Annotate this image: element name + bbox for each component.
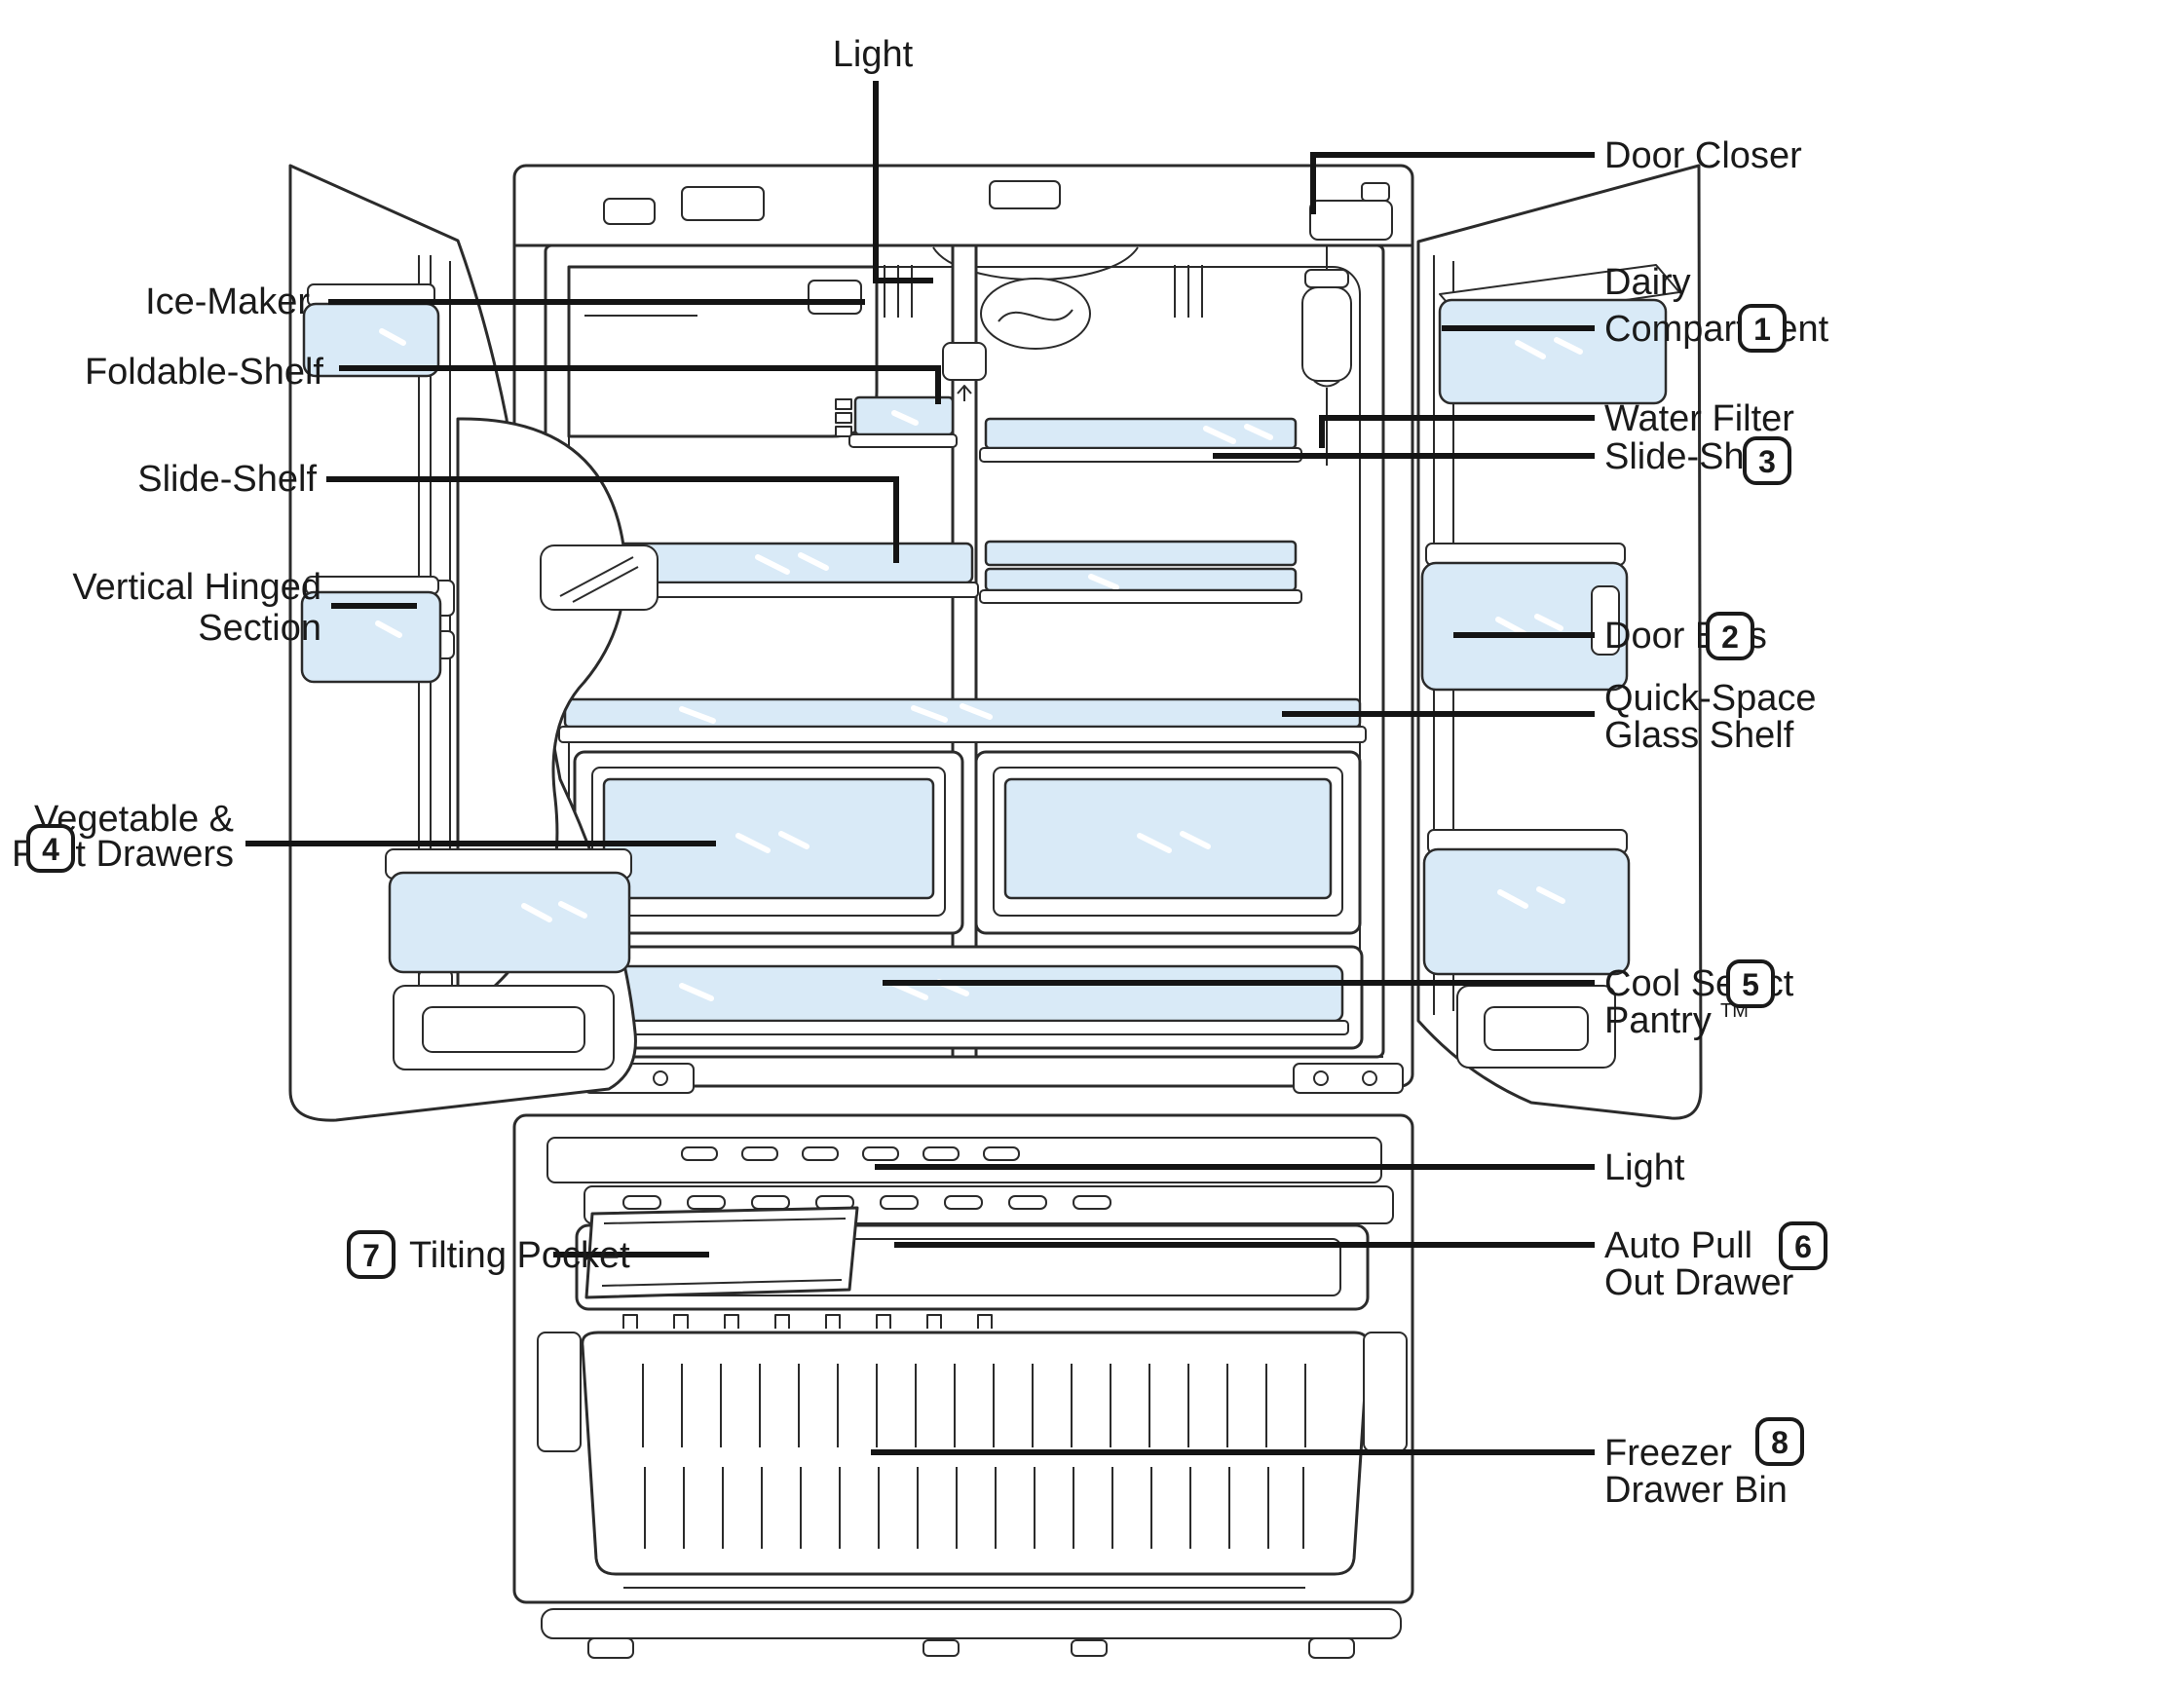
label-ice-maker: Ice-Maker <box>145 281 310 322</box>
label-slide-shelf-left: Slide-Shelf <box>137 459 317 500</box>
right-door-middle-bin <box>1422 544 1627 690</box>
callout-slide-shelf-3: 3 <box>1745 438 1789 483</box>
top-hinge-plate-left <box>682 187 764 220</box>
freezer-section <box>514 1115 1412 1658</box>
cool-select-pantry-part <box>563 947 1362 1048</box>
callout-auto-pull-6: 6 <box>1781 1223 1826 1268</box>
callout-vegetable-4: 4 <box>28 826 73 871</box>
quick-space-glass-shelf-part <box>559 699 1366 742</box>
callout-freezer-8: 8 <box>1757 1419 1802 1464</box>
label-cool-select-2: Pantry <box>1604 1000 1712 1041</box>
label-dairy-1: Dairy <box>1604 262 1691 303</box>
left-door-top-bin <box>304 284 438 376</box>
callout-number-3: 3 <box>1758 444 1776 479</box>
callout-number-7: 7 <box>362 1238 380 1273</box>
label-freezer-1: Freezer <box>1604 1433 1732 1474</box>
label-auto-pull-1: Auto Pull <box>1604 1225 1752 1266</box>
callout-number-6: 6 <box>1794 1229 1812 1264</box>
top-cover-part <box>990 181 1060 208</box>
callout-number-8: 8 <box>1771 1425 1789 1460</box>
callout-dairy-1: 1 <box>1740 306 1785 351</box>
callout-number-5: 5 <box>1742 967 1759 1002</box>
callout-door-bins-2: 2 <box>1708 614 1752 658</box>
label-light-top: Light <box>833 34 914 75</box>
label-light-bottom: Light <box>1604 1147 1685 1188</box>
diagram-canvas: Light Ice-Maker Foldable-Shelf Slide-She… <box>0 0 2184 1689</box>
left-door-middle-bin <box>302 577 440 682</box>
label-quick-space-1: Quick-Space <box>1604 678 1817 719</box>
callout-cool-select-5: 5 <box>1728 961 1773 1006</box>
callout-tilting-7: 7 <box>349 1232 394 1277</box>
label-tilting-pocket: Tilting Pocket <box>409 1235 630 1276</box>
top-bracket <box>604 199 655 224</box>
label-vertical-hinged-2: Section <box>198 608 321 649</box>
left-door-bottom-bin <box>386 849 631 1070</box>
label-freezer-2: Drawer Bin <box>1604 1470 1788 1511</box>
callout-number-2: 2 <box>1721 619 1739 655</box>
label-door-closer: Door Closer <box>1604 135 1802 176</box>
callout-number-1: 1 <box>1753 312 1771 347</box>
refrigerator-parts-diagram: Light Ice-Maker Foldable-Shelf Slide-She… <box>0 0 2184 1689</box>
label-auto-pull-2: Out Drawer <box>1604 1262 1794 1303</box>
callout-number-4: 4 <box>42 832 59 867</box>
ice-maker-part <box>569 267 877 436</box>
label-dairy-2: Compartment <box>1604 309 1829 350</box>
right-double-shelf-part <box>980 542 1301 603</box>
label-water-filter: Water Filter <box>1604 398 1794 439</box>
label-vertical-hinged-1: Vertical Hinged <box>72 567 321 608</box>
label-foldable-shelf: Foldable-Shelf <box>85 352 323 393</box>
label-quick-space-2: Glass Shelf <box>1604 715 1794 756</box>
